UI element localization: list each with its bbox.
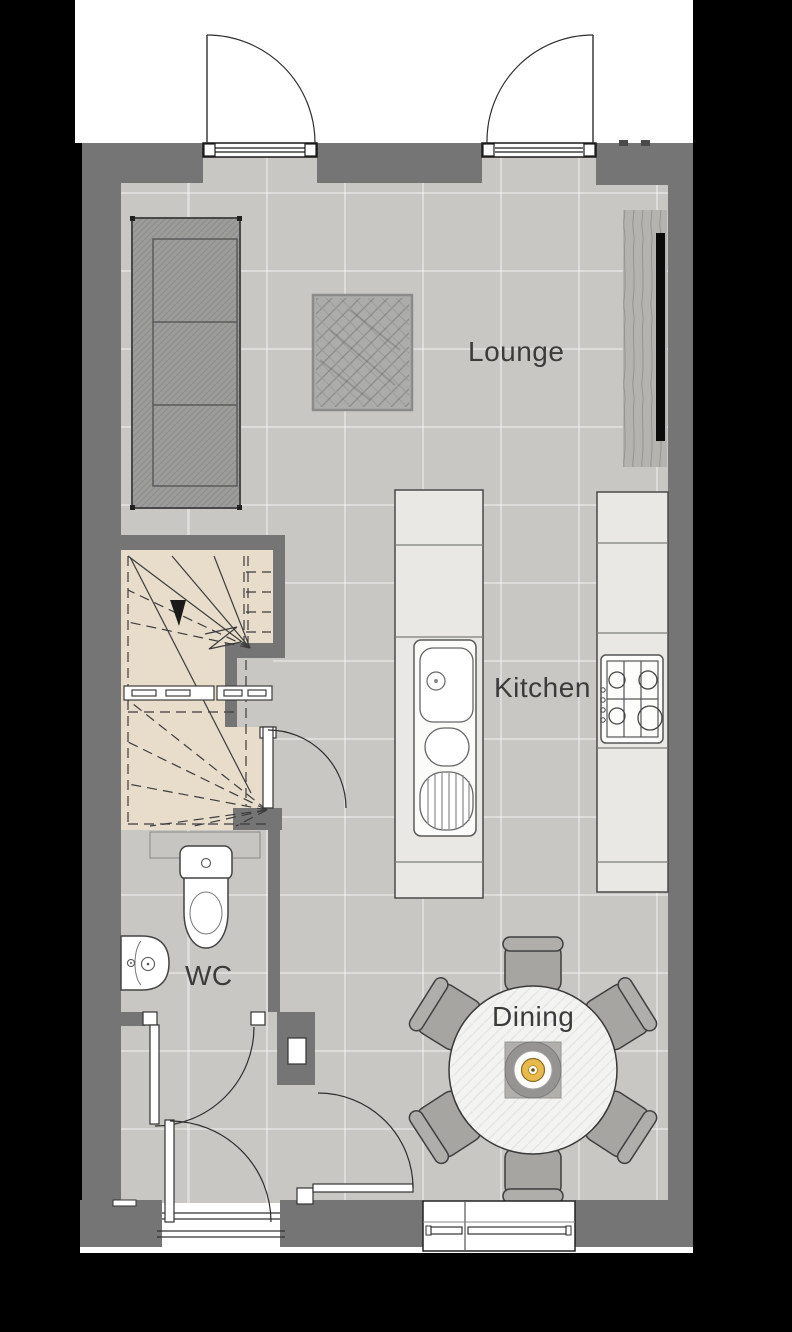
kitchen-island <box>395 490 483 898</box>
basin <box>121 936 169 990</box>
door-swing-arc <box>487 35 593 143</box>
door-leaf <box>150 1025 159 1124</box>
dining-window <box>423 1201 575 1251</box>
plan-linework <box>0 0 792 1332</box>
door-leaf <box>165 1120 174 1222</box>
door-swing-arc <box>207 35 315 143</box>
door-swing-arc <box>268 730 346 808</box>
door-swing-arc <box>318 1093 413 1188</box>
wc-door <box>143 1012 265 1126</box>
stairs-door <box>260 727 346 808</box>
lounge-door-left <box>203 35 317 157</box>
gas-hob <box>601 655 663 743</box>
stair-nosing <box>124 686 272 700</box>
kitchen-sink <box>414 640 476 836</box>
sofa <box>130 216 242 510</box>
lounge-door-right <box>482 35 596 157</box>
label-dining: Dining <box>492 1001 574 1033</box>
pendant-centerpiece <box>505 1042 561 1098</box>
wall-vent-mark <box>641 140 650 146</box>
label-kitchen: Kitchen <box>494 672 591 704</box>
stair-down-arrow <box>170 600 186 626</box>
door-leaf <box>263 727 273 808</box>
front-door <box>113 1120 285 1247</box>
kitchen-counter-right <box>597 492 668 892</box>
door-leaf <box>313 1184 413 1192</box>
label-wc: WC <box>185 960 233 992</box>
dining-hall-door <box>288 1038 413 1204</box>
label-lounge: Lounge <box>468 336 564 368</box>
tv <box>656 233 665 441</box>
toilet <box>180 846 232 948</box>
door-swing-arc <box>155 1027 254 1126</box>
tv-media-unit <box>623 210 667 467</box>
rug <box>313 295 412 410</box>
floor-plan: Lounge Kitchen WC Dining <box>0 0 792 1332</box>
wall-vent-mark <box>619 140 628 146</box>
staircase-linework <box>124 556 272 826</box>
